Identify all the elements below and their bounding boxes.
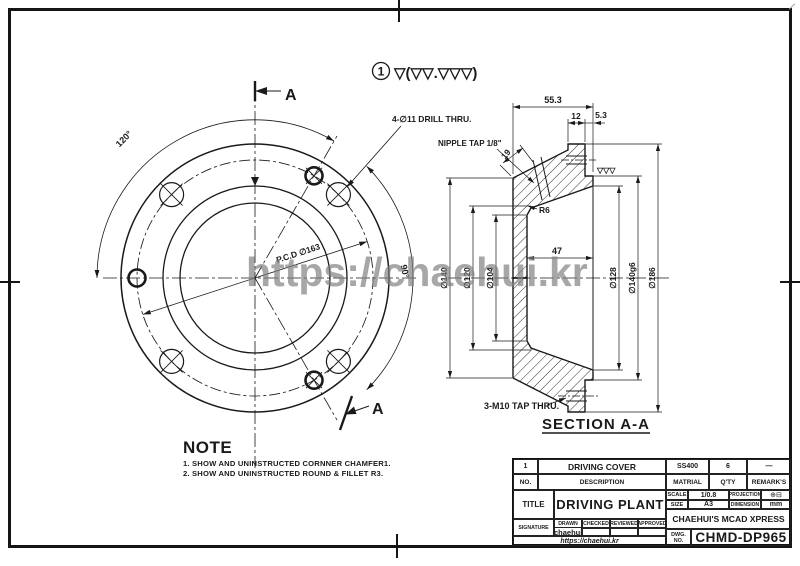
drawing-title: DRIVING PLANT bbox=[554, 490, 666, 519]
title-block: 1 DRIVING COVER SS400 6 — NO. DESCRIPTIO… bbox=[512, 458, 790, 545]
item-qty: 6 bbox=[709, 459, 747, 474]
section-mark-bottom bbox=[340, 396, 369, 430]
dim-dia-186: ∅186 bbox=[647, 267, 657, 289]
scale-label: SCALE bbox=[666, 490, 688, 500]
dim-fillet: R6 bbox=[539, 205, 550, 215]
approved-label: APPROVED bbox=[638, 519, 666, 528]
drill-callout-text: 4-∅11 DRILL THRU. bbox=[392, 114, 472, 124]
company-name: CHAEHUI'S MCAD XPRESS bbox=[666, 509, 791, 529]
dim-total-width: 55.3 bbox=[544, 95, 562, 105]
center-arrow-mark bbox=[251, 177, 259, 186]
drill-callout-leader bbox=[347, 126, 401, 187]
projection-symbol-icon: ⊕⊟ bbox=[761, 490, 791, 500]
surface-mark-text: ▽▽▽ bbox=[596, 166, 616, 175]
surface-note-number: 1 bbox=[378, 65, 385, 79]
note-line-1: 1. SHOW AND UNINSTRUCTED CORNNER CHAMFER… bbox=[183, 459, 391, 468]
section-label-top: A bbox=[285, 87, 297, 104]
nipple-callout-text: NIPPLE TAP 1/8" bbox=[438, 139, 502, 148]
section-body-lower bbox=[513, 278, 593, 412]
item-material: SS400 bbox=[666, 459, 709, 474]
col-description: DESCRIPTION bbox=[538, 474, 666, 490]
note-block: NOTE 1. SHOW AND UNINSTRUCTED CORNNER CH… bbox=[183, 438, 391, 478]
title-block-url: https://chaehui.kr bbox=[513, 536, 666, 546]
checked-label: CHECKED bbox=[582, 519, 610, 528]
item-no: 1 bbox=[513, 459, 538, 474]
dim-flange-width: 12 bbox=[571, 111, 581, 121]
section-label-bottom: A bbox=[372, 401, 384, 418]
dim-nipple-depth: 19 bbox=[499, 147, 513, 161]
scale-value: 1/0.8 bbox=[688, 490, 729, 500]
projection-label: PROJECTION bbox=[729, 490, 761, 500]
size-label: SIZE bbox=[666, 500, 688, 509]
size-value: A3 bbox=[688, 500, 729, 509]
dim-dia-140g6: ∅140g6 bbox=[627, 262, 637, 294]
drawing-sheet: { "watermark": "https://chaehui.kr", "su… bbox=[0, 0, 800, 566]
surface-finish-note: 1 ▽(▽▽.▽▽▽) bbox=[373, 63, 478, 83]
col-remark: REMARK'S bbox=[747, 474, 791, 490]
section-caption: SECTION A-A bbox=[542, 416, 650, 433]
item-remark: — bbox=[747, 459, 791, 474]
signature-label: SIGNATURE bbox=[513, 519, 554, 536]
angle-120-label: 120° bbox=[114, 128, 135, 149]
note-line-2: 2. SHOW AND UNINSTRUCTED ROUND & FILLET … bbox=[183, 469, 391, 478]
dwg-no-label: DWG. NO. bbox=[666, 529, 691, 546]
col-material: MATRIAL bbox=[666, 474, 709, 490]
m10-callout-text: 3-M10 TAP THRU. bbox=[484, 401, 559, 411]
title-label: TITLE bbox=[513, 490, 554, 519]
col-no: NO. bbox=[513, 474, 538, 490]
col-qty: Q'TY bbox=[709, 474, 747, 490]
watermark: https://chaehui.kr bbox=[246, 249, 588, 296]
section-mark-top bbox=[255, 81, 281, 101]
dimension-unit: mm bbox=[761, 500, 791, 509]
note-heading: NOTE bbox=[183, 438, 391, 458]
dim-dia-128: ∅128 bbox=[608, 267, 618, 289]
dim-hub-width: 5.3 bbox=[595, 110, 607, 120]
reviewed-label: REVIEWED bbox=[610, 519, 638, 528]
item-description: DRIVING COVER bbox=[538, 459, 666, 474]
surface-note-symbols: ▽(▽▽.▽▽▽) bbox=[393, 65, 477, 82]
dwg-no-value: CHMD-DP965 bbox=[691, 529, 791, 546]
dimension-label: DIMENSION bbox=[729, 500, 761, 509]
